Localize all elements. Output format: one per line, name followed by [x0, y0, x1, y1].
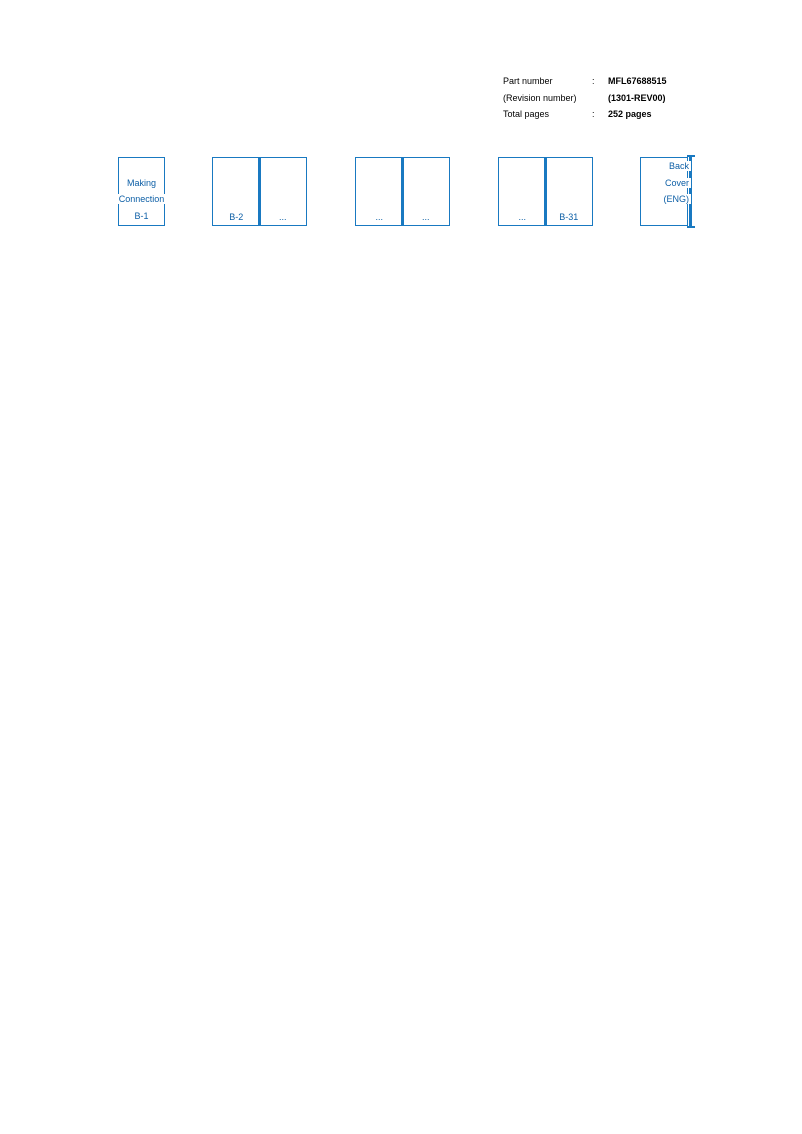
revision-number-row: (Revision number) (1301-REV00) [503, 90, 667, 107]
page-box-b1-caption: Making Connection B-1 [99, 175, 184, 225]
revision-number-value: (1301-REV00) [608, 93, 666, 103]
back-cover-line1: Back [640, 158, 691, 175]
page-label-ellipsis: ... [403, 212, 450, 223]
part-number-label: Part number [503, 76, 592, 86]
manual-spec-page: Part number : MFL67688515 (Revision numb… [0, 0, 802, 1134]
total-pages-label: Total pages [503, 109, 592, 119]
page-label-b1: B-1 [99, 208, 184, 225]
back-cover-caption: Back Cover (ENG) [640, 158, 691, 208]
b1-caption-line1: Making [99, 175, 184, 192]
page-label-b31: B-31 [546, 212, 593, 223]
part-number-row: Part number : MFL67688515 [503, 73, 667, 90]
page-label-ellipsis: ... [356, 212, 403, 223]
pagination-diagram: B-2 ... ... ... ... B-31 Making Connecti… [0, 157, 802, 226]
back-cover-line3: (ENG) [640, 191, 691, 208]
page-spread-middle: ... ... [355, 157, 450, 226]
total-pages-value: 252 pages [608, 109, 652, 119]
page-label-ellipsis: ... [260, 212, 307, 223]
total-pages-row: Total pages : 252 pages [503, 106, 667, 123]
total-pages-colon: : [592, 109, 608, 119]
page-spread-b31: ... B-31 [498, 157, 593, 226]
revision-number-label: (Revision number) [503, 93, 592, 103]
b1-caption-line2: Connection [99, 191, 184, 208]
back-cover-line2: Cover [640, 175, 691, 192]
page-label-b2: B-2 [213, 212, 260, 223]
page-spread-b2: B-2 ... [212, 157, 307, 226]
print-spec-table: Part number : MFL67688515 (Revision numb… [503, 73, 667, 123]
part-number-value: MFL67688515 [608, 76, 667, 86]
page-label-ellipsis: ... [499, 212, 546, 223]
part-number-colon: : [592, 76, 608, 86]
